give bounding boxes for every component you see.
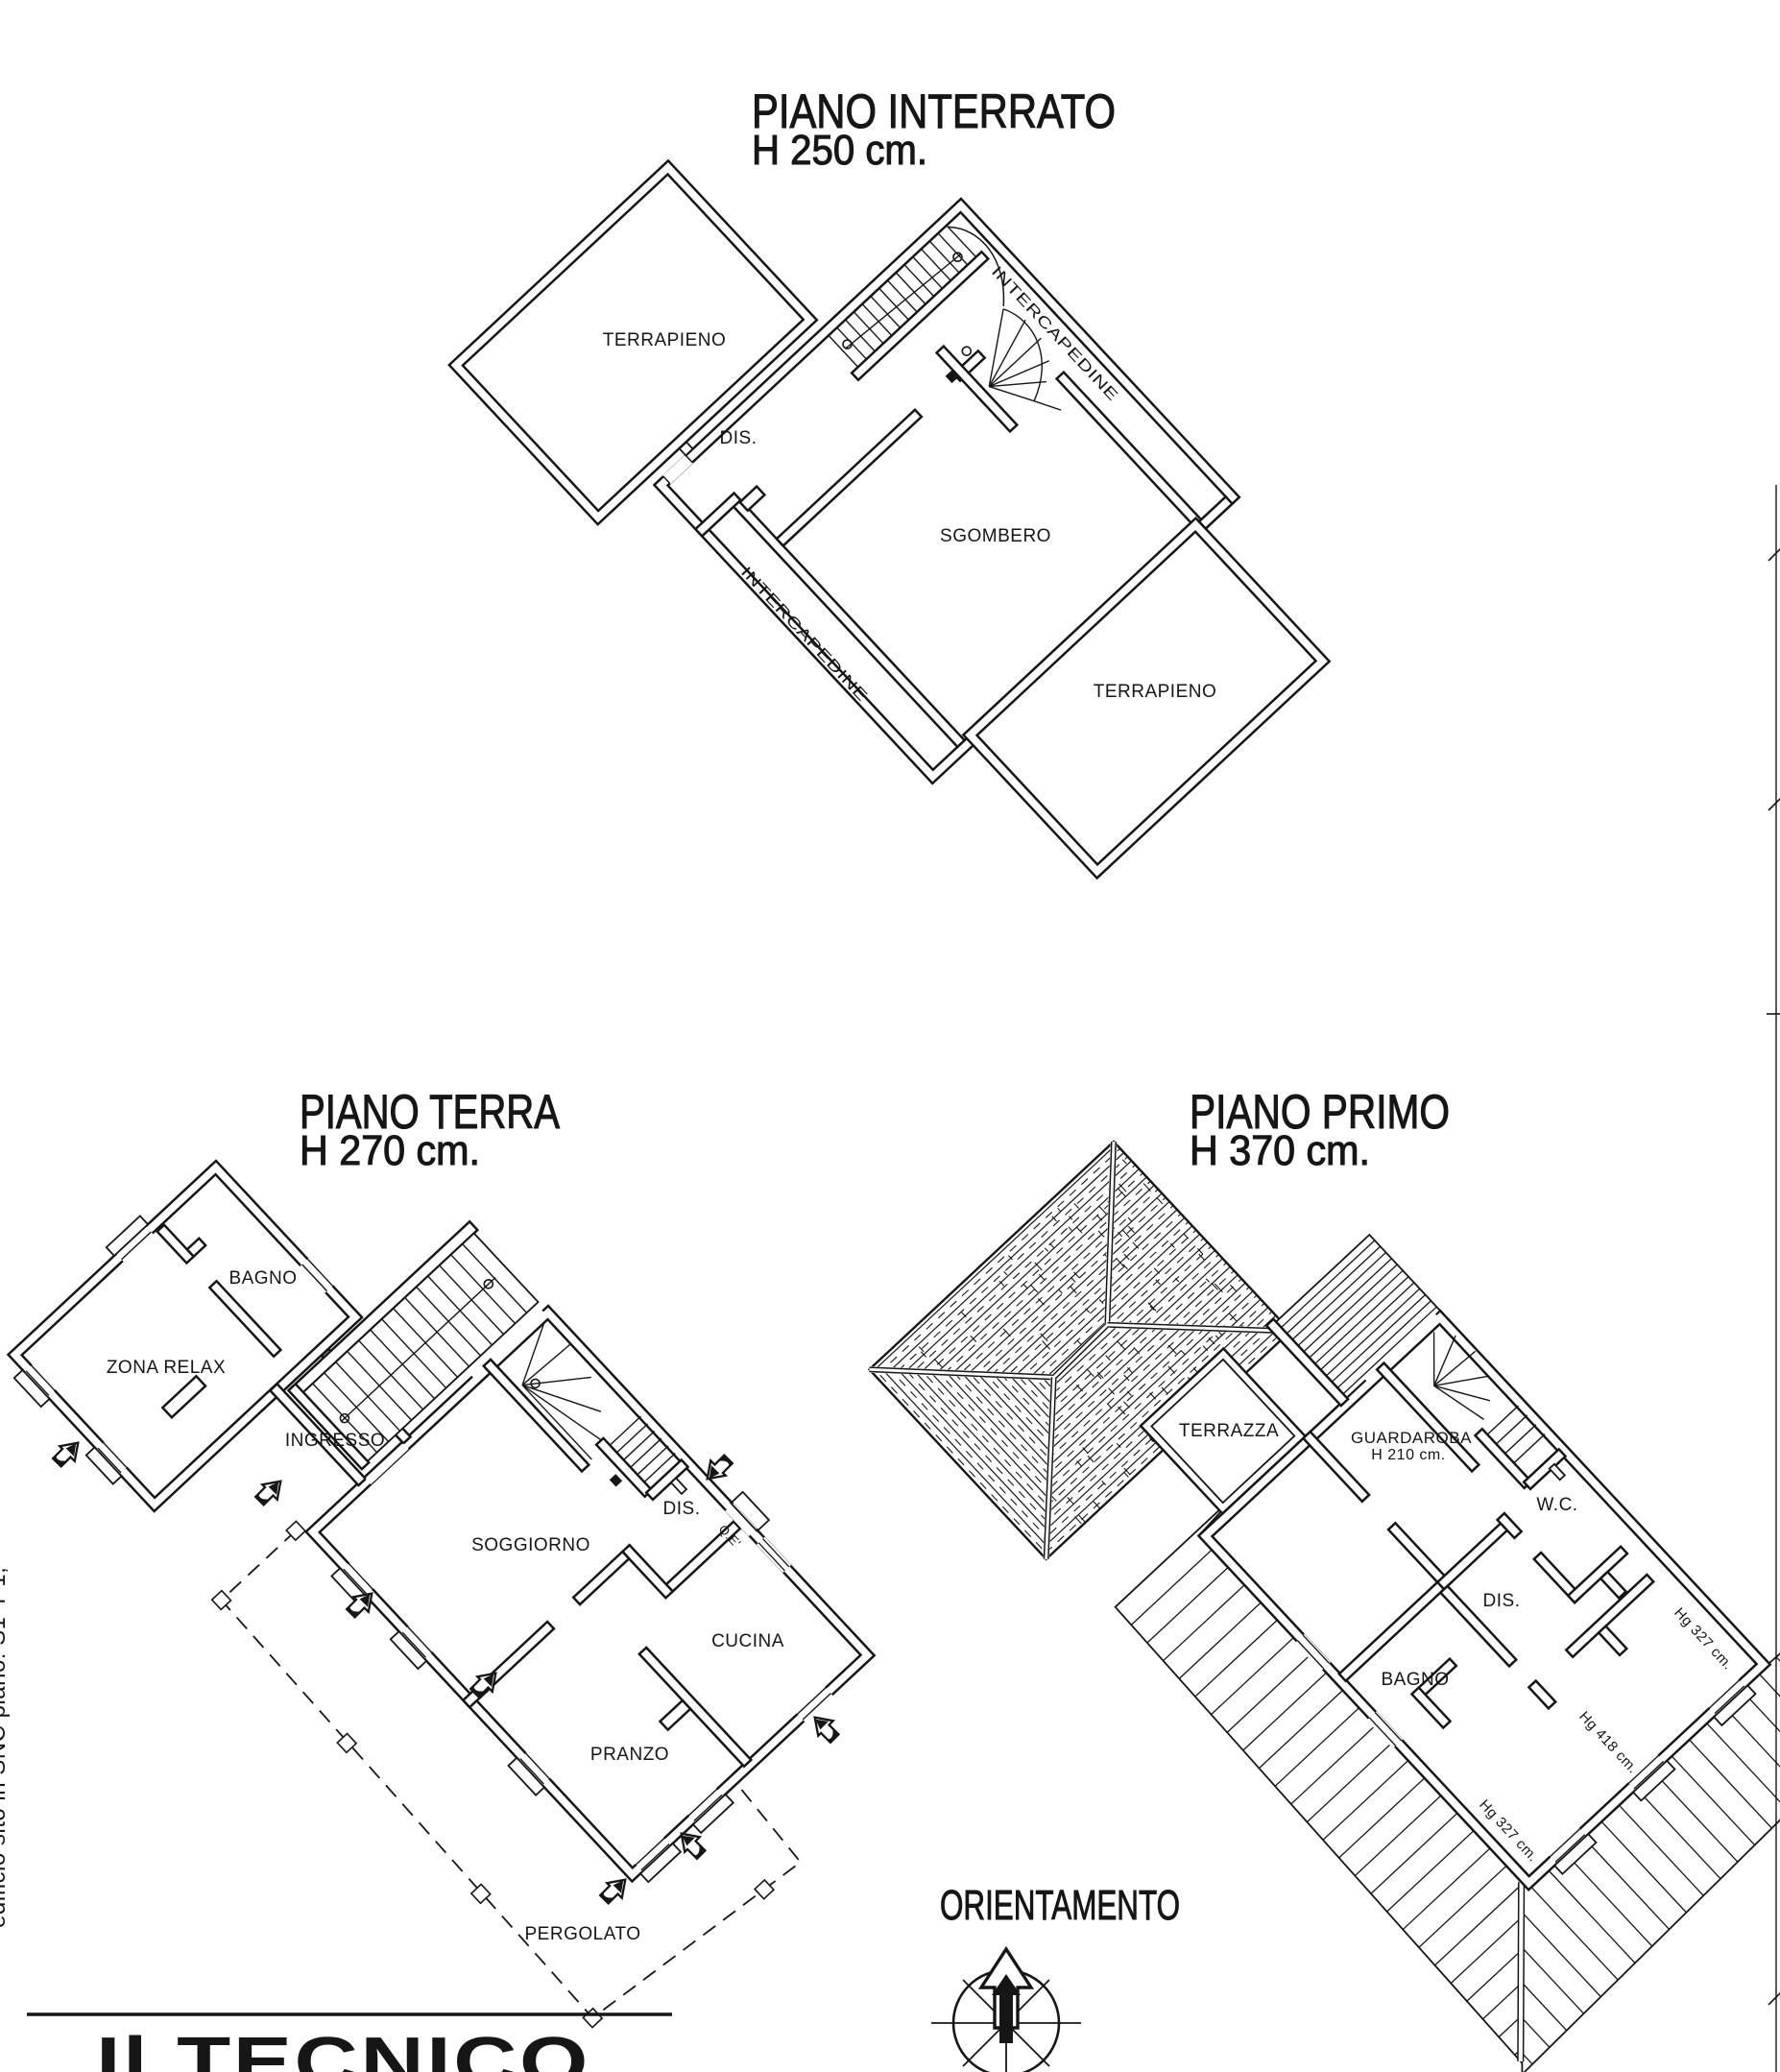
svg-text:TERRAZZA: TERRAZZA [1179,1421,1279,1441]
svg-text:DIS.: DIS. [720,428,758,448]
svg-text:SOGGIORNO: SOGGIORNO [471,1535,590,1555]
svg-text:DIS.: DIS. [1483,1591,1521,1611]
svg-text:W.C.: W.C. [1536,1495,1577,1515]
svg-text:TERRAPIENO: TERRAPIENO [1094,682,1217,702]
svg-text:CUCINA: CUCINA [711,1631,784,1651]
svg-text:BAGNO: BAGNO [1381,1670,1449,1690]
svg-text:SGOMBERO: SGOMBERO [940,526,1051,546]
svg-text:INGRESSO: INGRESSO [285,1431,385,1451]
svg-text:Il TECNICO: Il TECNICO [96,2024,590,2072]
svg-text:GUARDAROBA: GUARDAROBA [1351,1429,1472,1447]
svg-text:H 250 cm.: H 250 cm. [752,127,927,174]
svg-text:ZONA RELAX: ZONA RELAX [107,1358,226,1378]
svg-text:H 270 cm.: H 270 cm. [300,1127,480,1174]
svg-text:ORIENTAMENTO: ORIENTAMENTO [940,1882,1180,1929]
svg-text:H 210 cm.: H 210 cm. [1371,1447,1445,1463]
svg-text:PERGOLATO: PERGOLATO [525,1924,641,1944]
svg-text:DIS.: DIS. [663,1499,701,1519]
svg-text:BAGNO: BAGNO [229,1268,297,1289]
svg-text:edificio sito in SNC piano: S1: edificio sito in SNC piano: S1-T-1, [0,1567,11,1928]
svg-text:H 370 cm.: H 370 cm. [1190,1127,1370,1174]
svg-text:PRANZO: PRANZO [590,1745,669,1765]
svg-text:TERRAPIENO: TERRAPIENO [603,330,727,350]
